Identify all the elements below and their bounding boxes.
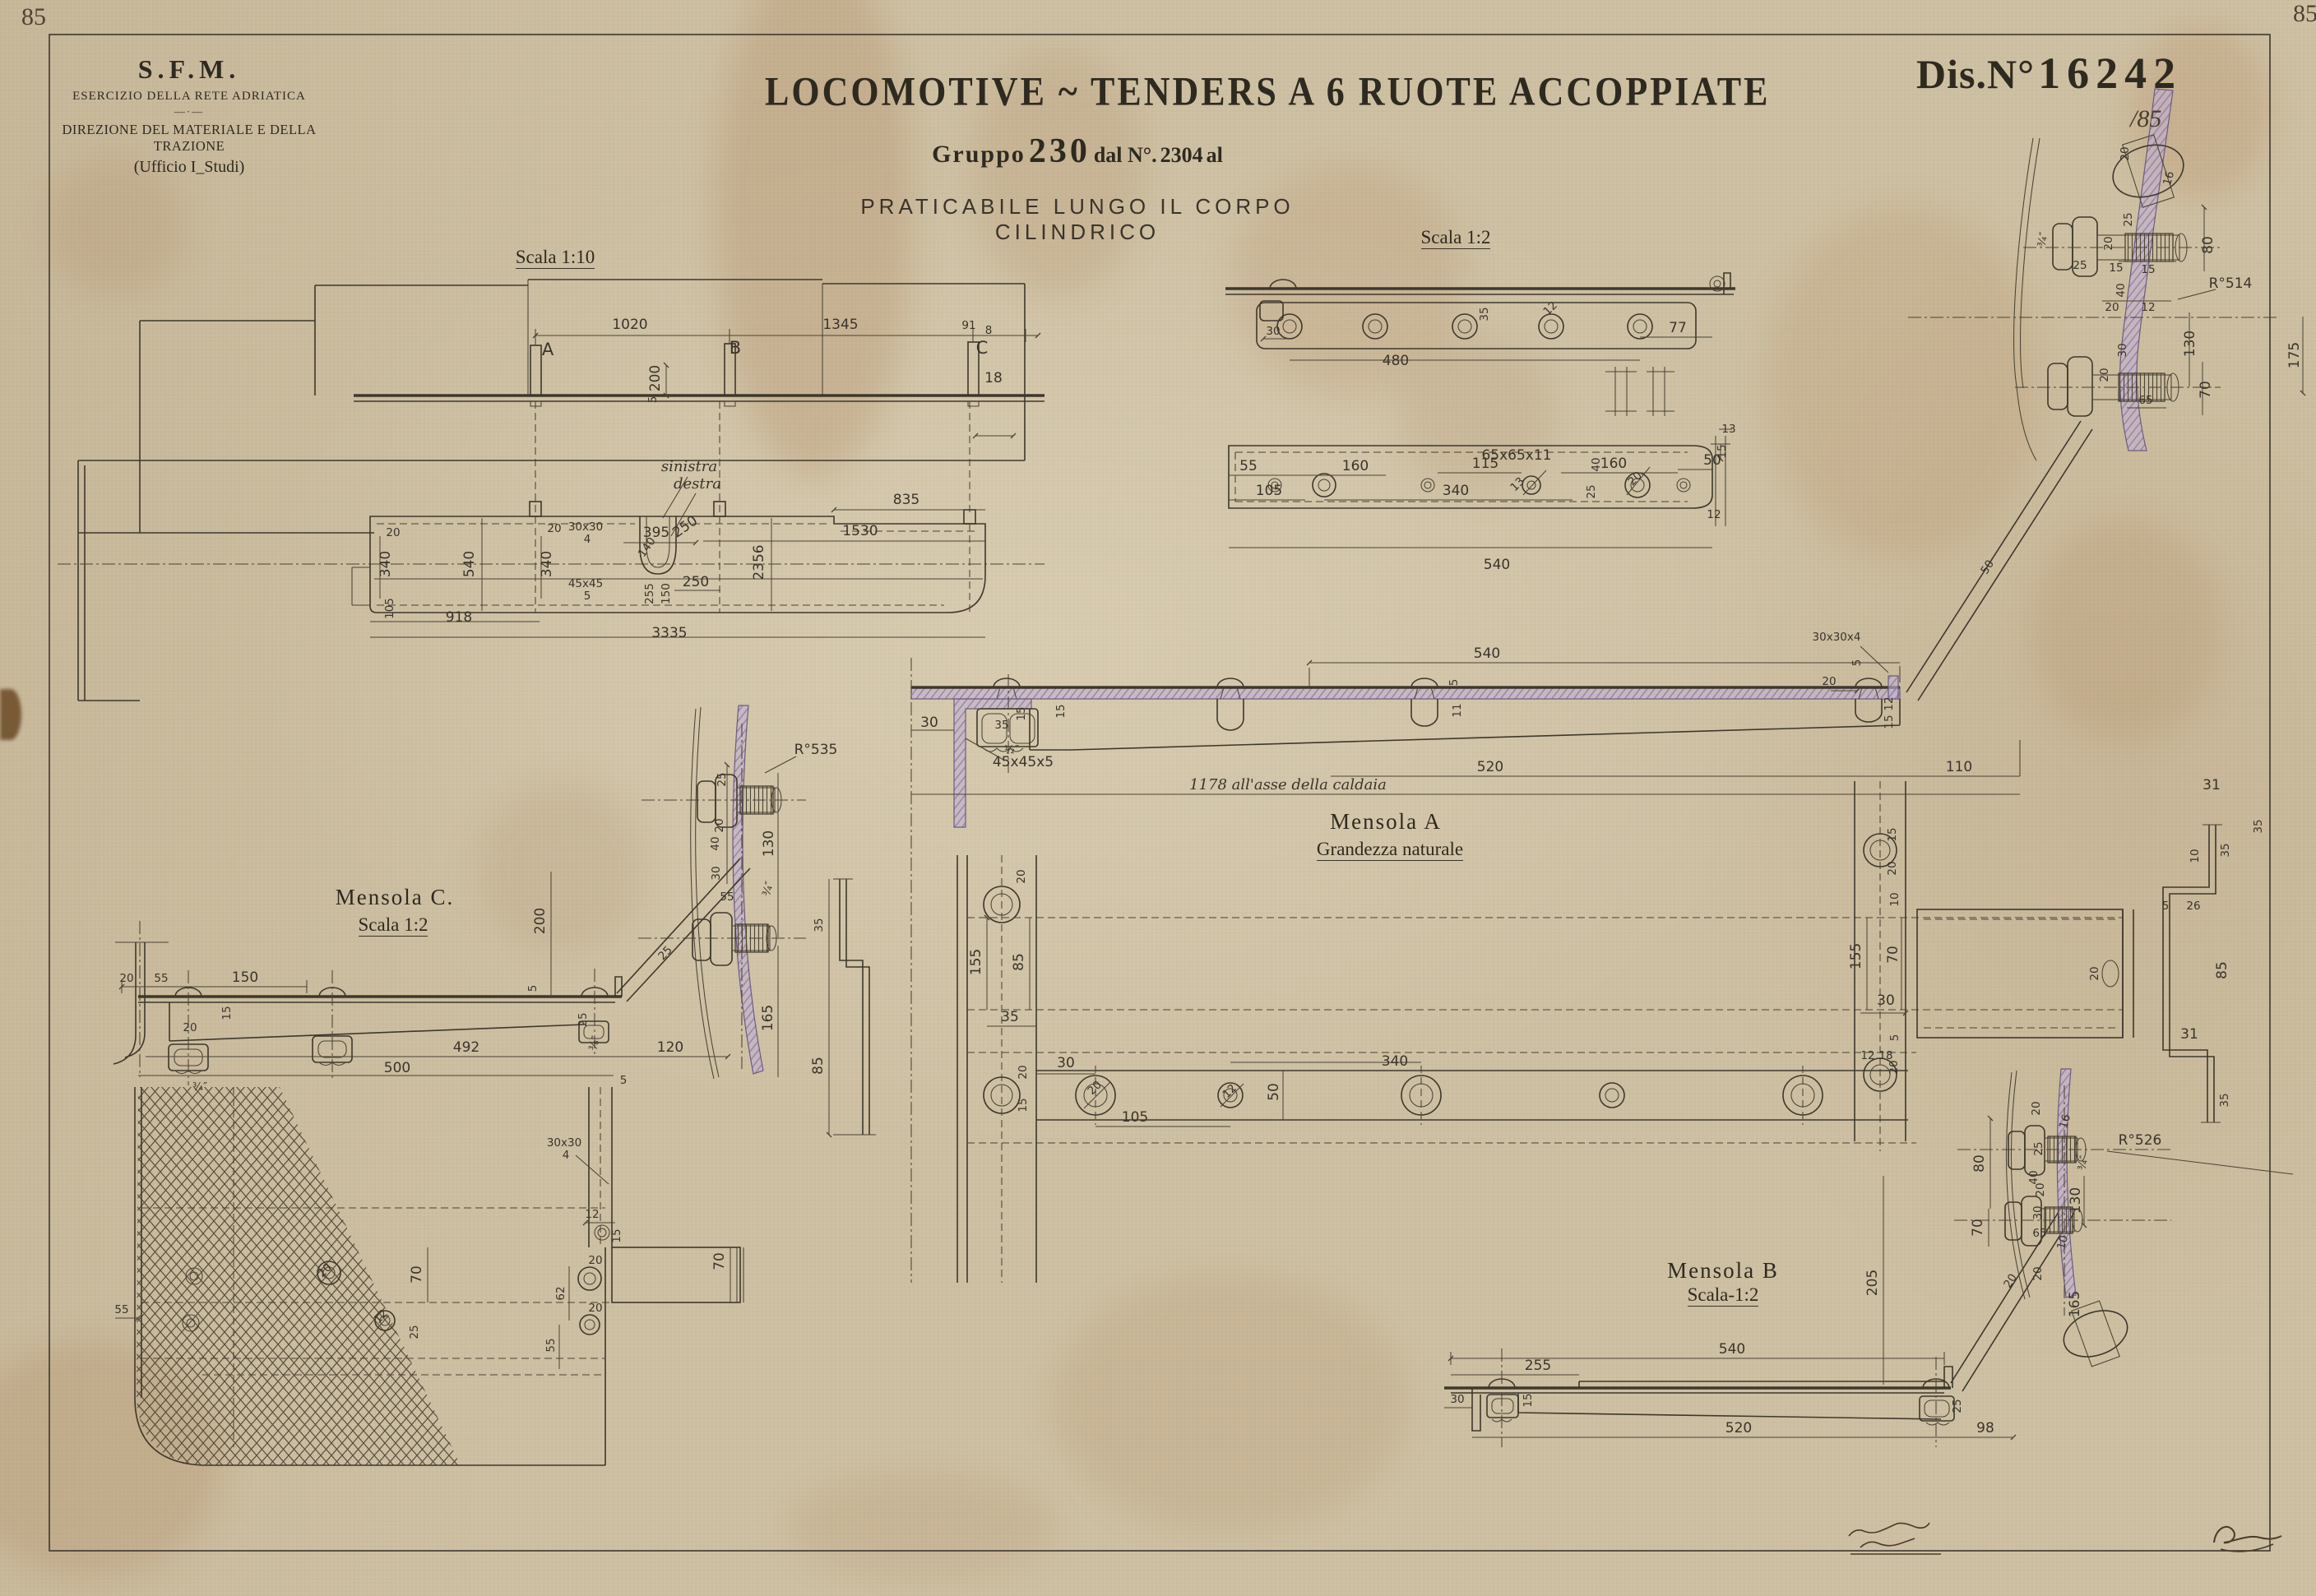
dim-label: 5 — [646, 396, 660, 404]
dim-label: 20 — [2088, 966, 2101, 980]
org-line3: DIREZIONE DEL MATERIALE E DELLA TRAZIONE — [58, 122, 321, 155]
dim-label: 50 — [1266, 1083, 1282, 1101]
dim-label: 25 — [1951, 1399, 1964, 1413]
dim-label: 35 — [1001, 1009, 1019, 1025]
dim-label: 20 — [2102, 236, 2115, 250]
dim-label: 20 — [588, 1254, 602, 1267]
blueprint-sheet: .o{fill:none;stroke:#3e382c;stroke-width… — [0, 0, 2316, 1596]
dis-sub-number: /85 — [2130, 105, 2161, 133]
dim-label: 98 — [1976, 1420, 1994, 1436]
dim-label: 25 — [577, 1012, 590, 1026]
dim-label: 91 — [961, 319, 975, 332]
drawing-title: LOCOMOTIVE ~ TENDERS A 6 RUOTE ACCOPPIAT… — [765, 68, 1439, 115]
dim-label: 20 — [119, 972, 133, 985]
dal-label: dal N°. — [1094, 143, 1157, 167]
dim-label: 4 — [563, 1149, 570, 1162]
dim-label: 20 — [2098, 368, 2111, 382]
dim-label: 5 — [1447, 679, 1461, 687]
mensola-b-scale: Scala-1:2 — [1653, 1284, 1793, 1306]
dim-label: 18 — [984, 370, 1003, 386]
dim-label: 12 — [1883, 696, 1896, 710]
dim-label: 20 — [2031, 1266, 2045, 1280]
dim-label: 15 — [220, 1006, 234, 1020]
dim-label: B — [730, 338, 741, 358]
dim-label: 25 — [1585, 484, 1598, 498]
dis-label: Dis.N° — [1916, 51, 2035, 97]
dim-label: 20 — [2001, 1271, 2020, 1290]
dim-label: 30 — [2116, 343, 2129, 357]
dim-label: 105 — [383, 598, 396, 619]
dim-label: 30x30x4 — [1813, 631, 1861, 644]
drawing-number-block: Dis.N° 16242 — [1916, 48, 2278, 99]
dim-label: 150 — [232, 969, 258, 986]
dim-label: ¾″ — [760, 880, 776, 898]
dim-label: 13 — [1721, 423, 1735, 436]
mensola-c-scale: Scala 1:2 — [327, 914, 459, 936]
dim-label: 85 — [1011, 953, 1027, 971]
dim-label: 160 — [1600, 456, 1627, 472]
dim-label: 35 — [2252, 819, 2265, 833]
dim-label: 20 — [1886, 861, 1899, 875]
dim-label: 120 — [657, 1039, 683, 1056]
dim-label: 1530 — [842, 523, 878, 539]
dim-label: 20 — [1888, 1060, 1901, 1074]
dim-label: 500 — [384, 1060, 410, 1076]
dim-label: 480 — [1383, 353, 1409, 369]
dim-label: 12 — [1707, 508, 1721, 521]
dim-label: 55 — [114, 1303, 128, 1316]
org-line4: (Ufficio I_Studi) — [58, 158, 321, 177]
dim-label: 25 — [655, 944, 674, 963]
dal-value: 2304 — [1160, 143, 1203, 167]
dim-label: 16 — [2057, 1113, 2073, 1131]
dim-label: 165 — [760, 1005, 776, 1031]
mensola-b-title: Mensola B — [1633, 1258, 1813, 1284]
dim-label: 65 — [2138, 394, 2152, 407]
dim-label: 165 — [2067, 1291, 2083, 1317]
dim-label: 30 — [1266, 325, 1280, 338]
dim-label: 50 — [1978, 557, 1997, 576]
dim-label: 85 — [810, 1057, 827, 1075]
dim-label: 540 — [461, 551, 478, 577]
dim-label: 110 — [1946, 759, 1972, 775]
dim-label: 20 — [547, 522, 561, 535]
scale-label-1-10: Scala 1:10 — [493, 247, 617, 268]
dim-label: 25 — [2073, 259, 2087, 272]
dim-label: 10 — [2189, 849, 2202, 863]
dim-label: 25 — [716, 772, 729, 786]
dim-label: 20 — [1625, 469, 1644, 488]
dim-label: C — [976, 338, 989, 358]
dim-label: 155 — [968, 949, 984, 975]
dim-label: 1020 — [612, 317, 647, 333]
dim-label: 30 — [920, 715, 938, 731]
dim-label: 20 — [713, 818, 726, 832]
dim-label: 5 — [584, 590, 591, 603]
dim-label: 20 — [1085, 1078, 1104, 1097]
dim-label: 20 — [386, 526, 400, 539]
dim-label: 918 — [446, 609, 472, 626]
dim-label: R°535 — [794, 742, 838, 758]
dim-label: 31 — [2203, 777, 2221, 793]
dim-label: 155 — [1848, 943, 1864, 969]
dim-label: 40 — [2115, 283, 2128, 297]
dim-label: 11 — [1451, 703, 1464, 717]
dim-label: 115 — [1472, 456, 1498, 472]
dim-label: 70 — [2198, 381, 2214, 399]
dim-label: 5 — [1888, 1034, 1901, 1042]
dim-label: 30 — [2031, 1205, 2045, 1219]
dim-label: 40 — [709, 836, 722, 850]
org-block: S.F.M. ESERCIZIO DELLA RETE ADRIATICA —·… — [58, 54, 321, 177]
dim-label: 150 — [660, 583, 673, 604]
dim-label: destra — [674, 475, 721, 493]
dim-label: 1178 all'asse della caldaia — [1189, 776, 1387, 793]
dim-label: 45x45x5 — [993, 754, 1054, 770]
dim-label: 77 — [1669, 320, 1687, 336]
org-initials: S.F.M. — [58, 54, 321, 85]
dim-label: 175 — [2286, 342, 2303, 368]
dim-label: 2356 — [751, 544, 767, 580]
dim-label: 5 — [1850, 659, 1864, 667]
dim-label: 35 — [994, 719, 1008, 732]
dim-label: 80 — [1971, 1154, 1988, 1173]
dim-label: 200 — [647, 365, 664, 391]
dim-label: 15 — [1054, 704, 1068, 718]
drawing-subject: PRATICABILE LUNGO IL CORPO CILINDRICO — [831, 194, 1324, 245]
detail-r535 — [638, 705, 876, 1135]
dim-label: 12 — [585, 1208, 599, 1221]
dim-label: A — [542, 340, 554, 359]
dim-label: 255 — [1525, 1358, 1551, 1374]
dim-label: ¾″ — [2076, 1154, 2091, 1172]
dim-label: 25 — [408, 1325, 421, 1339]
mesh-plan — [115, 1087, 743, 1465]
dim-label: 250 — [683, 574, 709, 590]
dim-label: 340 — [539, 551, 555, 577]
dim-label: 30 — [1057, 1055, 1075, 1071]
dim-label: 20 — [2030, 1101, 2043, 1115]
dim-label: 55 — [544, 1338, 558, 1352]
dim-label: 492 — [453, 1039, 479, 1056]
dim-label: 85 — [2214, 961, 2230, 979]
dim-label: 8 — [985, 324, 993, 337]
dim-label: 20 — [183, 1021, 197, 1034]
dim-label: 70 — [1885, 946, 1901, 964]
dim-label: 205 — [1864, 1270, 1881, 1296]
mensola-a-title: Mensola A — [1279, 809, 1493, 835]
dim-label: ¾″ — [2036, 231, 2051, 248]
dim-label: 540 — [1474, 645, 1500, 662]
dim-label: 12 — [1860, 1049, 1874, 1062]
dim-label: 540 — [1719, 1341, 1745, 1358]
dim-label: 70 — [711, 1252, 728, 1270]
dim-label: R°514 — [2209, 275, 2253, 292]
dim-label: 35 — [1478, 307, 1491, 321]
scale-label-1-2: Scala 1:2 — [1390, 227, 1522, 248]
dim-label: 105 — [1122, 1109, 1148, 1126]
dim-label: ¾″ — [192, 1080, 207, 1094]
dim-label: 520 — [1725, 1420, 1752, 1436]
dim-label: 3335 — [651, 625, 687, 641]
dim-label: 130 — [761, 830, 777, 857]
dim-label: R°526 — [2119, 1132, 2162, 1149]
dim-label: 340 — [378, 551, 394, 577]
signatures — [1849, 1523, 2281, 1554]
dim-label: 45x45 — [568, 577, 603, 590]
dim-label: 540 — [1484, 557, 1510, 573]
dim-label: 20 — [1015, 869, 1028, 883]
dim-label: 15 — [1886, 827, 1899, 841]
dim-label: 255 — [643, 583, 656, 604]
dim-label: 20 — [2105, 301, 2119, 314]
dim-label: 20 — [588, 1302, 602, 1315]
dim-label: 4 — [584, 533, 591, 546]
detail-r514 — [1908, 89, 2303, 460]
dim-label: 340 — [1382, 1053, 1408, 1070]
dim-label: 20 — [1822, 675, 1836, 688]
gruppo-value: 230 — [1029, 132, 1091, 170]
dim-label: 520 — [1477, 759, 1503, 775]
dim-label: 5 — [526, 985, 540, 992]
dim-label: 35 — [2218, 1093, 2231, 1107]
dim-label: 35 — [813, 918, 826, 932]
dim-label: 30 — [1450, 1393, 1464, 1406]
dim-label: 26 — [2186, 900, 2200, 913]
mensola-c-title: Mensola C. — [304, 885, 485, 910]
dim-label: 130 — [2182, 331, 2198, 357]
gruppo-label: Gruppo — [932, 141, 1026, 168]
dim-label: 340 — [1443, 483, 1469, 499]
dim-label: 40 — [2027, 1170, 2040, 1184]
dim-label: 5 — [2162, 900, 2170, 913]
dim-label: 1345 — [822, 317, 858, 333]
mensola-a-scale: Grandezza naturale — [1283, 839, 1497, 860]
dim-label: 55 — [1239, 458, 1258, 474]
dim-label: 25 — [2032, 1141, 2045, 1155]
dim-label: 55 — [154, 972, 168, 985]
dim-label: 130 — [2068, 1187, 2084, 1214]
dim-label: 35 — [2219, 843, 2232, 857]
dim-label: 10 — [1888, 892, 1901, 906]
dim-label: 25 — [2122, 212, 2135, 226]
dim-label: 105 — [1256, 483, 1282, 499]
dim-label: 20 — [2119, 146, 2132, 160]
sheet-number-topleft: 85 — [21, 3, 46, 31]
dim-label: 30x30 — [568, 520, 603, 534]
dim-label: 70 — [409, 1265, 425, 1284]
dim-label: 200 — [532, 908, 549, 934]
dim-label: 15 — [1883, 715, 1896, 729]
dim-label: 70 — [1970, 1219, 1986, 1237]
dim-label: 15 — [1522, 1393, 1535, 1407]
drawing-subtitle: Gruppo 230 dal N°. 2304 al — [872, 132, 1283, 171]
dim-label: 15 — [2109, 261, 2123, 275]
dim-label: 30 — [710, 866, 723, 880]
org-line2: ESERCIZIO DELLA RETE ADRIATICA — [58, 90, 321, 104]
dim-label: 15 — [2141, 263, 2155, 276]
dim-label: ⅜″ — [586, 1034, 603, 1052]
dim-label: 835 — [893, 492, 919, 508]
mensola-b — [1444, 1176, 2073, 1447]
mensola-a-elevation — [911, 421, 2092, 1283]
dim-label: 50 — [1703, 452, 1721, 469]
dim-label: 5 — [620, 1074, 628, 1087]
dim-label: 30x30 — [547, 1136, 581, 1150]
dim-label: 20 — [2034, 1182, 2047, 1196]
dim-label: 15 — [1017, 1098, 1030, 1112]
detail-r526 — [1954, 1069, 2293, 1373]
dim-label: sinistra — [661, 458, 717, 475]
dim-label: 55 — [720, 891, 734, 904]
dim-label: 12 — [2141, 301, 2155, 314]
org-divider: —·— — [58, 105, 321, 118]
al-label: al — [1207, 143, 1223, 167]
dis-value: 16242 — [2038, 49, 2182, 98]
dim-label: 20 — [1017, 1065, 1030, 1079]
sheet-number-topright: 85 — [2293, 0, 2316, 28]
dim-label: 30 — [1877, 992, 1895, 1009]
dim-label: 15 — [1015, 706, 1028, 720]
dim-label: 31 — [2180, 1026, 2198, 1043]
dim-label: 62 — [554, 1286, 567, 1300]
dim-label: 80 — [2200, 236, 2216, 254]
dim-label: 15 — [610, 1228, 623, 1242]
dim-label: 160 — [1342, 458, 1369, 474]
dim-label: 65 — [2032, 1227, 2046, 1240]
